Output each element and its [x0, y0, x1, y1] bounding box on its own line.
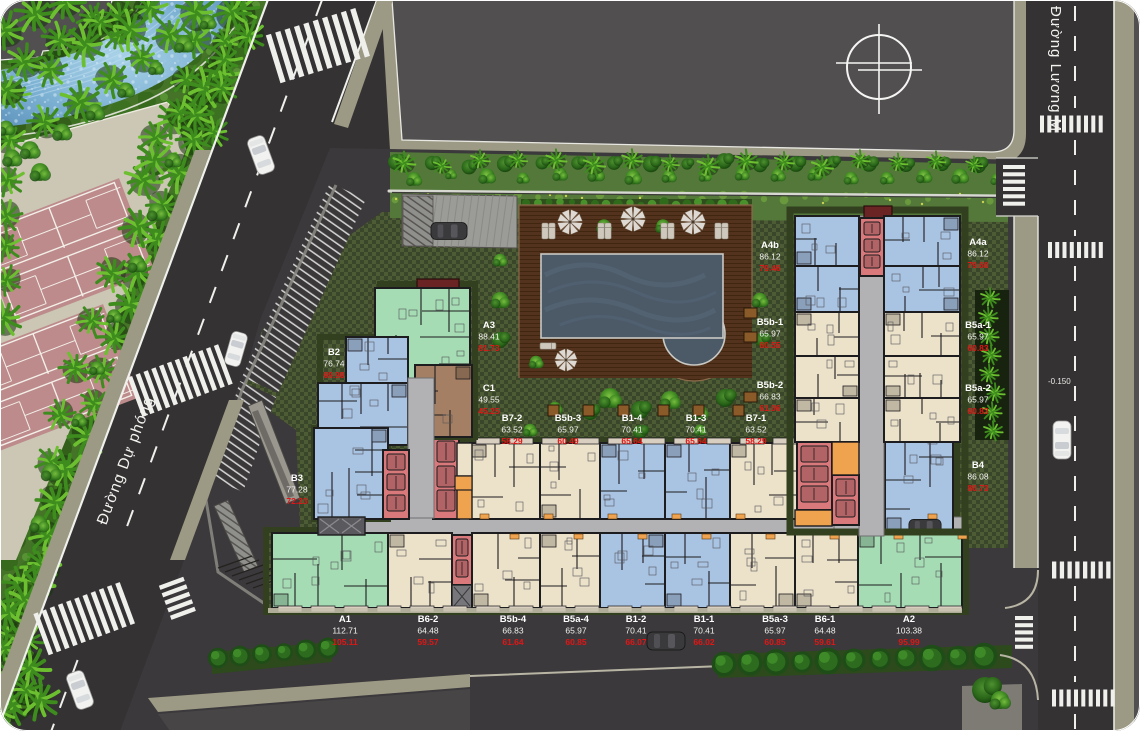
svg-text:C1: C1	[483, 383, 496, 394]
svg-text:A1: A1	[339, 614, 352, 625]
svg-text:B4: B4	[972, 460, 985, 471]
svg-text:65.97: 65.97	[759, 329, 781, 339]
svg-text:65.97: 65.97	[764, 626, 786, 636]
svg-text:64.48: 64.48	[814, 626, 836, 636]
svg-text:A4a: A4a	[969, 237, 987, 248]
svg-text:B5b-1: B5b-1	[757, 317, 784, 328]
svg-text:B5a-2: B5a-2	[965, 383, 991, 394]
svg-text:79.46: 79.46	[759, 263, 781, 273]
svg-text:B5b-4: B5b-4	[500, 614, 527, 625]
svg-text:86.12: 86.12	[967, 249, 989, 259]
svg-text:112.71: 112.71	[332, 626, 358, 636]
svg-text:66.07: 66.07	[625, 637, 647, 647]
svg-text:59.61: 59.61	[814, 637, 836, 647]
svg-text:70.41: 70.41	[625, 626, 647, 636]
svg-text:B1-3: B1-3	[686, 413, 707, 424]
svg-text:72.23: 72.23	[286, 496, 308, 506]
svg-text:77.28: 77.28	[286, 485, 308, 495]
svg-text:B1-4: B1-4	[622, 413, 643, 424]
svg-text:45.25: 45.25	[478, 406, 500, 416]
svg-text:95.99: 95.99	[898, 637, 920, 647]
svg-text:69.98: 69.98	[323, 370, 345, 380]
svg-text:60.85: 60.85	[565, 637, 587, 647]
svg-text:A4b: A4b	[761, 240, 779, 251]
svg-text:86.12: 86.12	[759, 252, 781, 262]
svg-text:B2: B2	[328, 347, 340, 358]
svg-text:65.64: 65.64	[685, 436, 707, 446]
svg-text:65.97: 65.97	[967, 395, 989, 405]
svg-text:65.97: 65.97	[557, 425, 579, 435]
svg-text:B7-2: B7-2	[502, 413, 523, 424]
svg-text:66.83: 66.83	[759, 392, 781, 402]
svg-text:79.60: 79.60	[967, 260, 989, 270]
svg-text:60.85: 60.85	[764, 637, 786, 647]
svg-text:A2: A2	[903, 614, 915, 625]
svg-text:70.41: 70.41	[685, 425, 707, 435]
svg-text:B5a-3: B5a-3	[762, 614, 788, 625]
svg-text:58.29: 58.29	[501, 436, 523, 446]
svg-text:105.11: 105.11	[332, 637, 358, 647]
svg-text:103.38: 103.38	[896, 626, 922, 636]
svg-text:B1-2: B1-2	[626, 614, 647, 625]
svg-text:66.02: 66.02	[693, 637, 715, 647]
svg-text:B6-2: B6-2	[418, 614, 439, 625]
svg-text:65.97: 65.97	[967, 332, 989, 342]
svg-text:66.83: 66.83	[502, 626, 524, 636]
svg-text:65.97: 65.97	[565, 626, 587, 636]
svg-text:58.29: 58.29	[745, 436, 767, 446]
svg-text:A3: A3	[483, 320, 495, 331]
svg-text:B3: B3	[291, 473, 303, 484]
svg-text:B5a-4: B5a-4	[563, 614, 590, 625]
svg-text:59.57: 59.57	[417, 637, 439, 647]
svg-text:70.41: 70.41	[621, 425, 643, 435]
svg-text:Đường Lương M: Đường Lương M	[1047, 6, 1064, 132]
svg-text:61.64: 61.64	[502, 637, 524, 647]
svg-text:61.06: 61.06	[759, 403, 781, 413]
svg-text:60.49: 60.49	[557, 436, 579, 446]
svg-text:B5a-1: B5a-1	[965, 320, 992, 331]
svg-text:70.41: 70.41	[693, 626, 715, 636]
svg-text:B1-1: B1-1	[694, 614, 715, 625]
svg-text:60.83: 60.83	[967, 406, 989, 416]
svg-text:88.41: 88.41	[478, 332, 500, 342]
svg-text:63.52: 63.52	[501, 425, 523, 435]
svg-text:B7-1: B7-1	[746, 413, 767, 424]
svg-text:60.83: 60.83	[967, 343, 989, 353]
svg-text:86.08: 86.08	[967, 472, 989, 482]
svg-text:64.48: 64.48	[417, 626, 439, 636]
svg-text:B5b-2: B5b-2	[757, 380, 783, 391]
svg-text:-0.150: -0.150	[1048, 377, 1071, 386]
svg-text:65.64: 65.64	[621, 436, 643, 446]
svg-text:80.73: 80.73	[967, 483, 989, 493]
svg-text:81.73: 81.73	[478, 343, 500, 353]
svg-text:B5b-3: B5b-3	[555, 413, 581, 424]
svg-text:60.55: 60.55	[759, 340, 781, 350]
svg-text:76.74: 76.74	[323, 359, 345, 369]
svg-text:49.55: 49.55	[478, 395, 500, 405]
svg-text:B6-1: B6-1	[815, 614, 836, 625]
svg-text:63.52: 63.52	[745, 425, 767, 435]
